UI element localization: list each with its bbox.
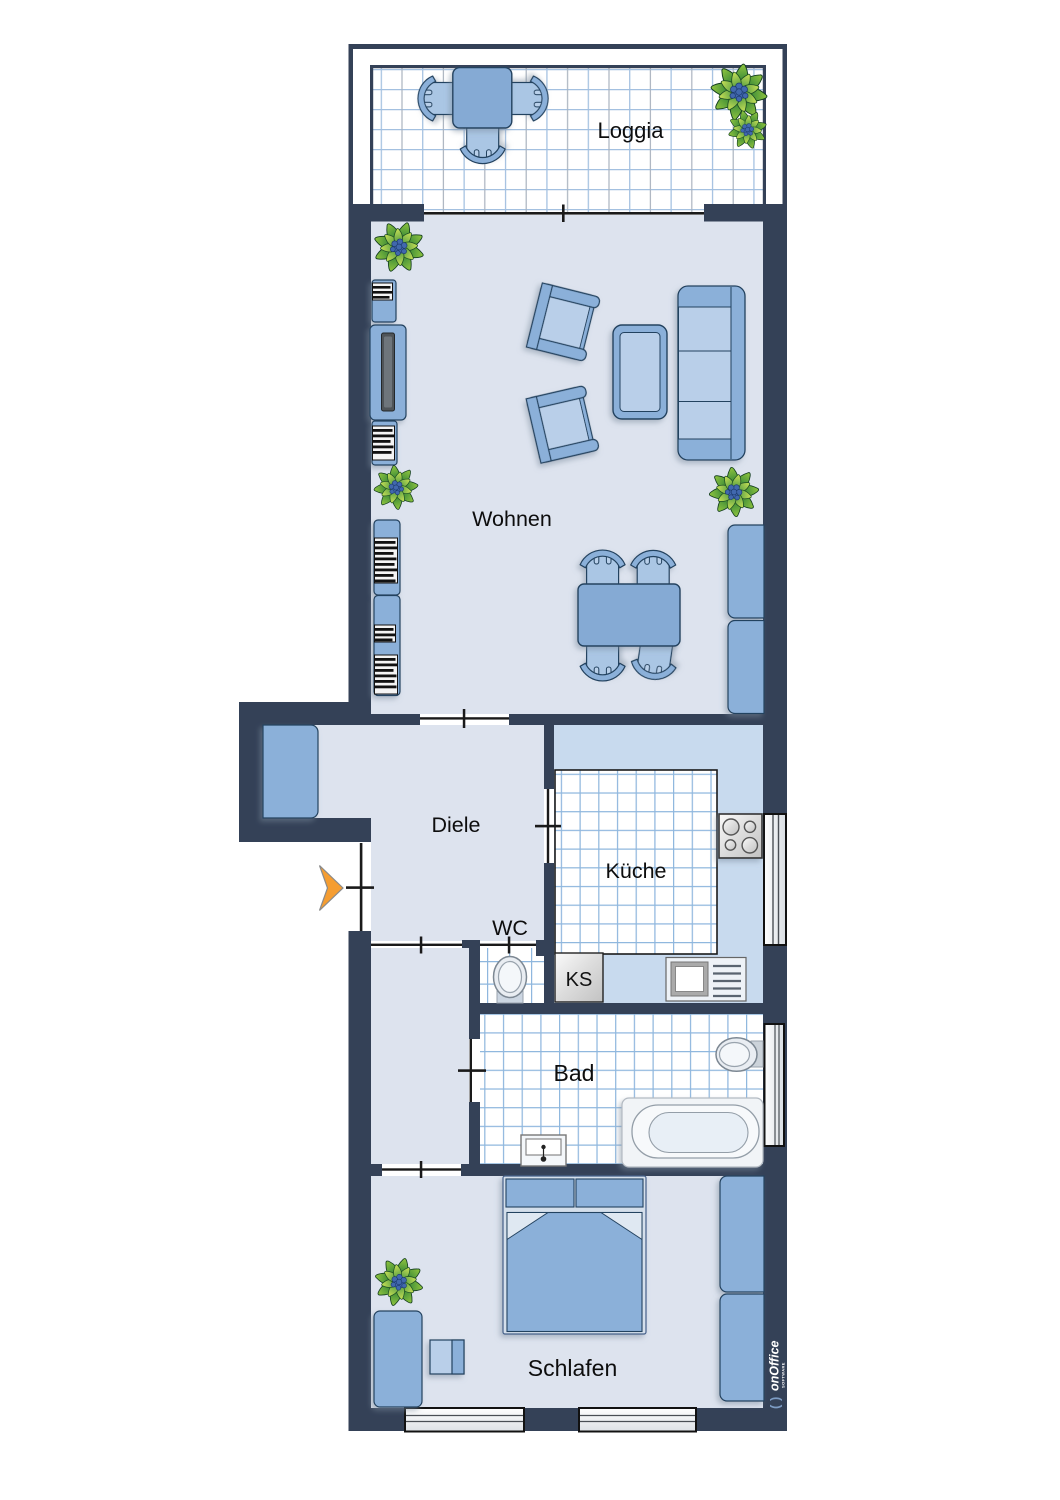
svg-text:SOFTWARE: SOFTWARE bbox=[781, 1362, 786, 1388]
svg-text:Bad: Bad bbox=[554, 1060, 595, 1086]
svg-text:( ): ( ) bbox=[768, 1397, 783, 1409]
svg-text:Schlafen: Schlafen bbox=[528, 1355, 618, 1381]
svg-text:Wohnen: Wohnen bbox=[472, 507, 552, 531]
svg-text:Küche: Küche bbox=[606, 859, 667, 883]
svg-text:Diele: Diele bbox=[432, 813, 481, 837]
svg-text:WC: WC bbox=[492, 916, 528, 940]
svg-text:KS: KS bbox=[566, 969, 593, 991]
svg-text:onOffice: onOffice bbox=[768, 1340, 782, 1391]
svg-text:Loggia: Loggia bbox=[597, 118, 664, 143]
